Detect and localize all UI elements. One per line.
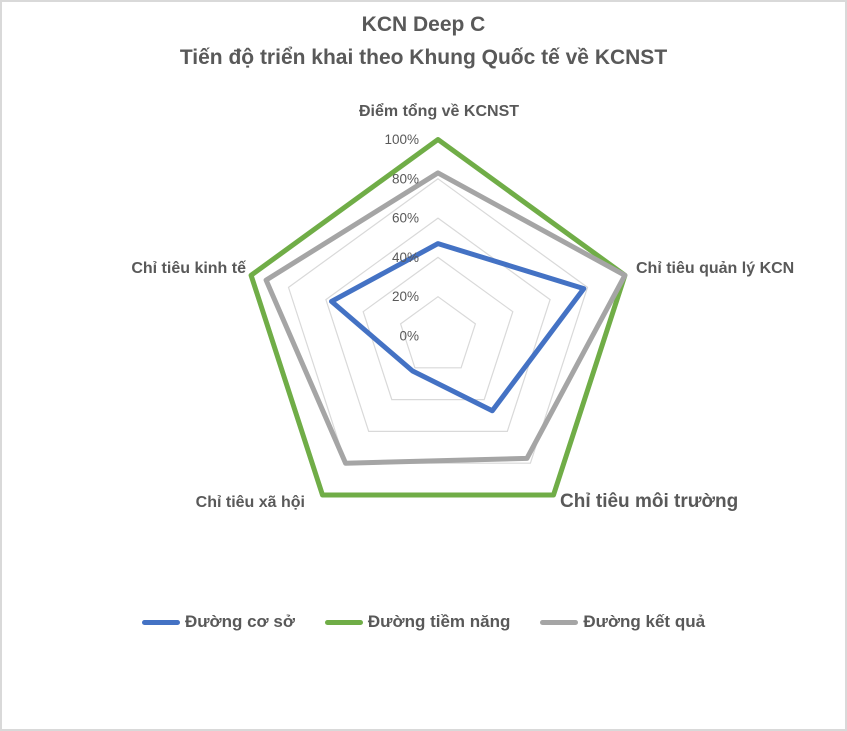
legend-label-potential: Đường tiềm năng bbox=[368, 612, 510, 632]
legend-label-baseline: Đường cơ sở bbox=[185, 612, 295, 632]
legend-item-potential: Đường tiềm năng bbox=[325, 612, 510, 632]
axis-label-bottom-left: Chỉ tiêu xã hội bbox=[196, 494, 305, 512]
series-line-1 bbox=[251, 140, 625, 496]
radial-tick-label: 80% bbox=[392, 171, 419, 186]
legend-item-baseline: Đường cơ sở bbox=[142, 612, 295, 632]
legend-swatch-baseline bbox=[142, 620, 180, 625]
radial-tick-label: 40% bbox=[392, 250, 419, 265]
radial-tick-label: 0% bbox=[399, 329, 419, 344]
radial-tick-label: 60% bbox=[392, 211, 419, 226]
axis-label-right: Chỉ tiêu quản lý KCN bbox=[636, 260, 794, 278]
axis-label-bottom-right: Chỉ tiêu môi trường bbox=[560, 491, 738, 513]
axis-label-top: Điểm tổng về KCNST bbox=[359, 103, 519, 121]
legend-swatch-result bbox=[540, 620, 578, 625]
chart-frame: KCN Deep C Tiến độ triển khai theo Khung… bbox=[0, 0, 847, 731]
radial-tick-label: 100% bbox=[384, 132, 419, 147]
gridline-ring bbox=[363, 257, 513, 399]
legend-item-result: Đường kết quả bbox=[540, 612, 705, 632]
legend-label-result: Đường kết quả bbox=[583, 612, 705, 632]
axis-label-left: Chỉ tiêu kinh tế bbox=[131, 260, 246, 278]
radial-tick-label: 20% bbox=[392, 289, 419, 304]
legend: Đường cơ sở Đường tiềm năng Đường kết qu… bbox=[2, 612, 845, 632]
series-line-2 bbox=[266, 173, 625, 463]
legend-swatch-potential bbox=[325, 620, 363, 625]
